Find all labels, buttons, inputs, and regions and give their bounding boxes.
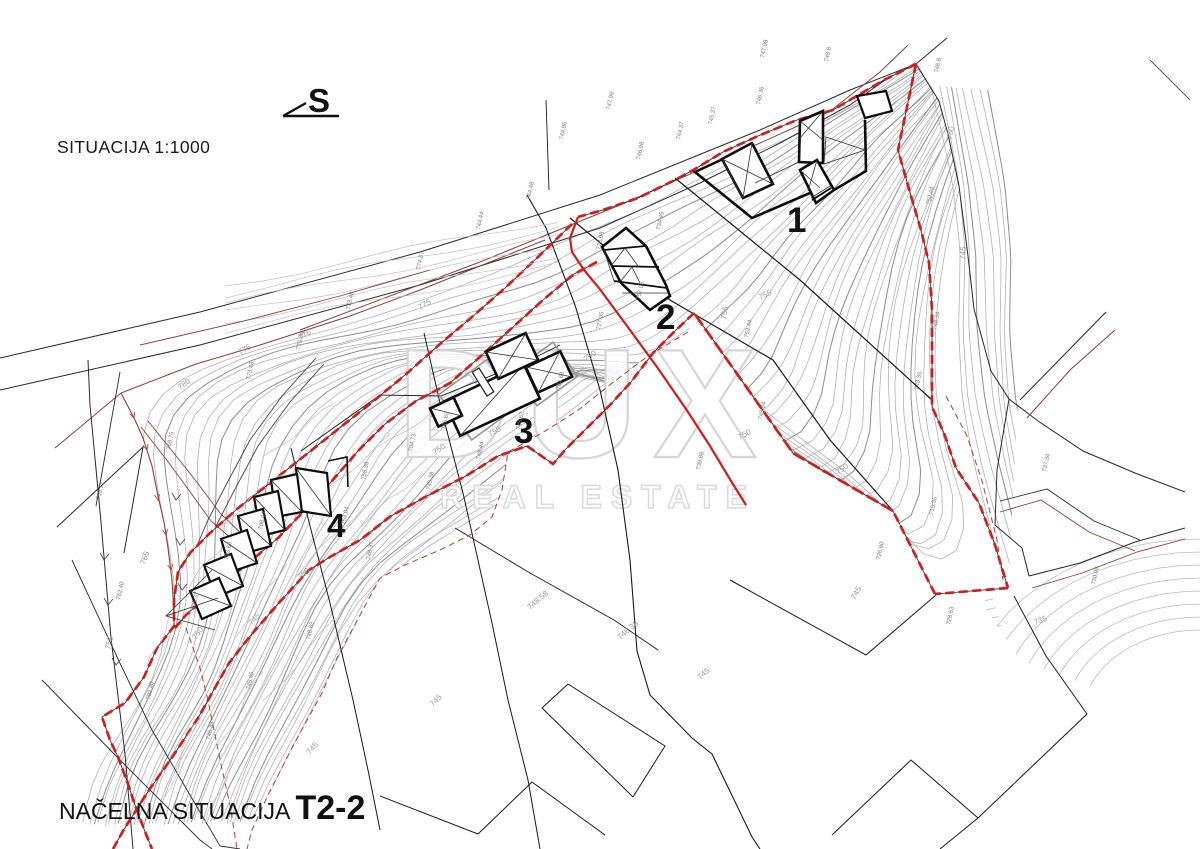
svg-text:2: 2 [656,298,675,337]
svg-text:REAL ESTATE: REAL ESTATE [440,479,756,515]
svg-text:SITUACIJA 1:1000: SITUACIJA 1:1000 [57,137,210,157]
svg-text:S: S [308,82,330,119]
svg-text:1: 1 [787,201,806,240]
svg-text:745: 745 [958,246,968,261]
